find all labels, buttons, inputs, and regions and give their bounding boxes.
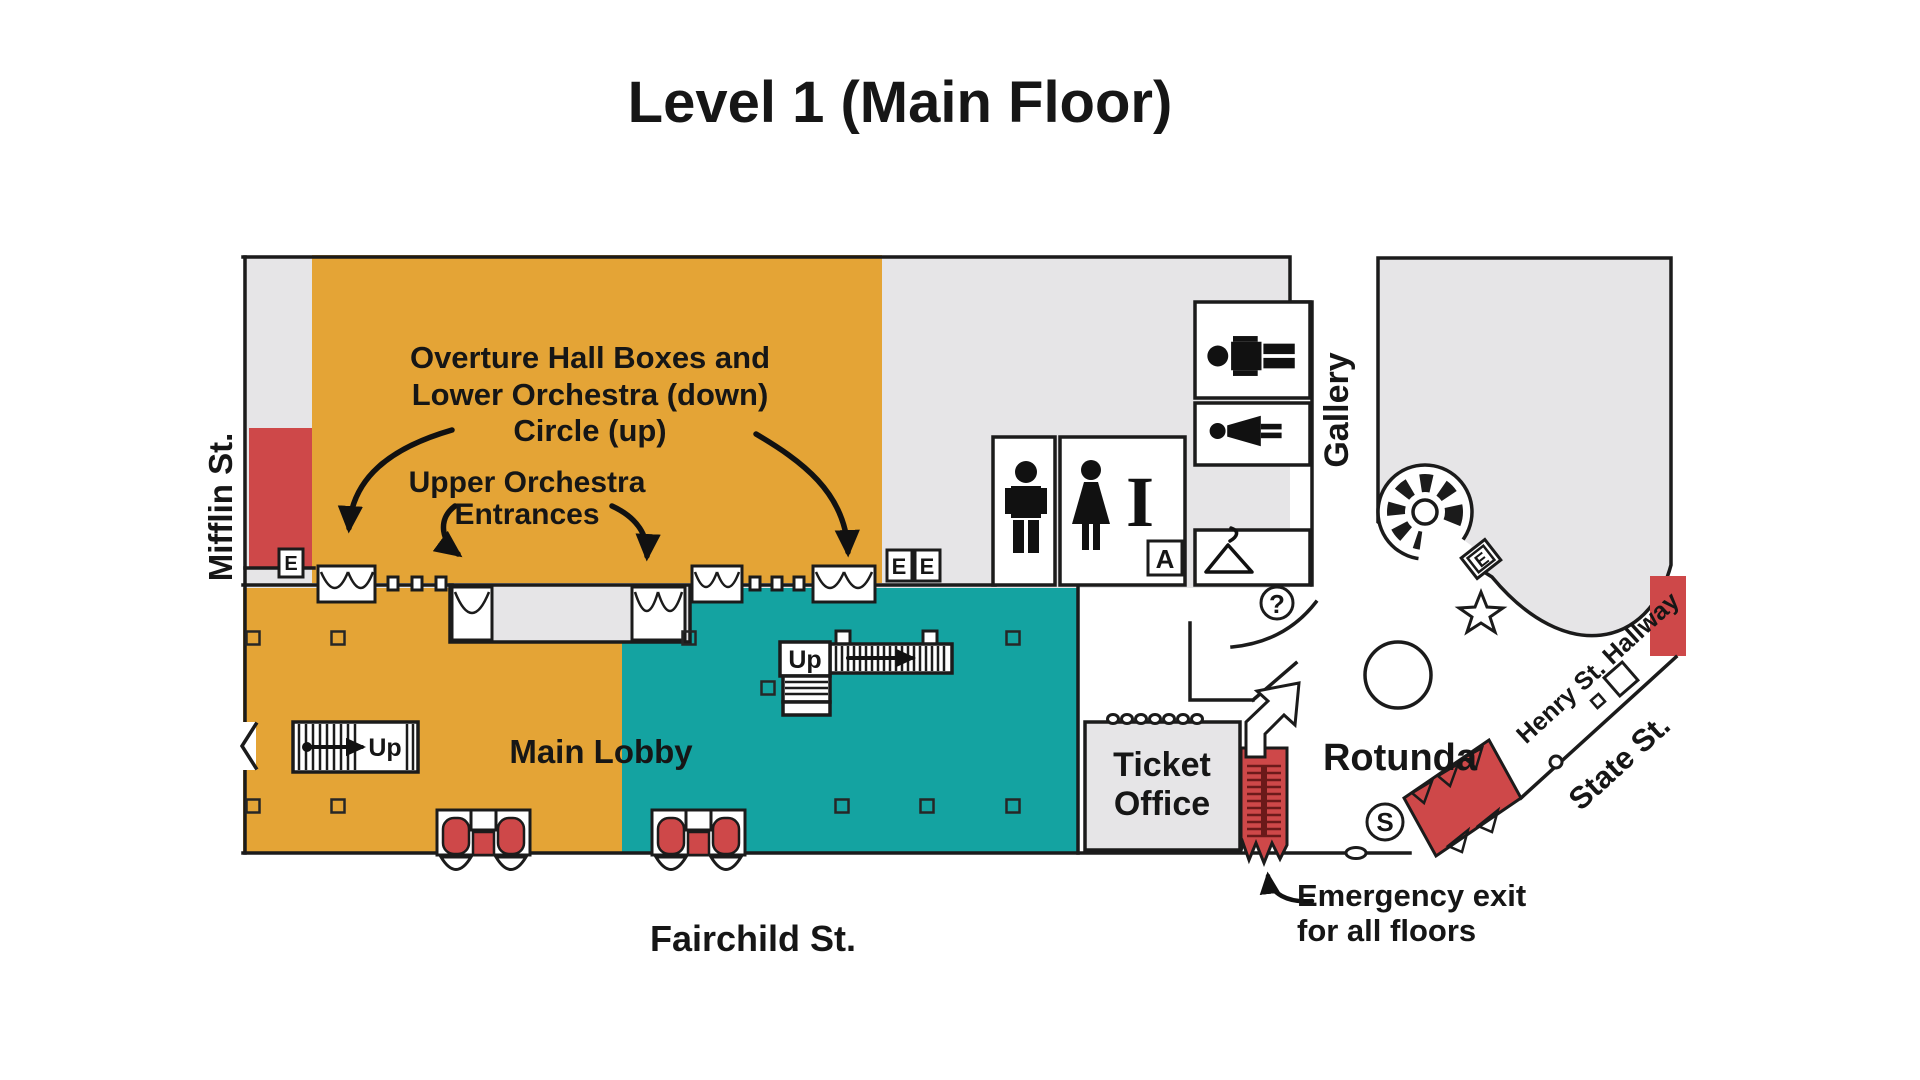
door-oval-marker: [1346, 848, 1366, 859]
star-marker: [1459, 592, 1503, 632]
up-center-label: Up: [788, 646, 821, 674]
coat-check-room: [1195, 530, 1310, 585]
lobby-vestibule-right: [652, 810, 745, 870]
street-label-state: State St.: [1562, 707, 1677, 817]
queue-dots: [1108, 715, 1203, 724]
wall-notch: [388, 577, 398, 590]
ticket-office-label-2: Office: [1114, 785, 1210, 823]
wall-notch: [412, 577, 422, 590]
overture-note-line1: Overture Hall Boxes and: [410, 340, 770, 375]
emergency-stair: [1241, 683, 1299, 863]
street-label-mifflin: Mifflin St.: [202, 433, 239, 581]
emergency-exit-note-line1: Emergency exit: [1297, 878, 1526, 913]
ticket-office: Ticket Office: [1085, 715, 1240, 851]
room-label-main-lobby: Main Lobby: [509, 733, 693, 770]
overture-note-line3: Circle (up): [513, 413, 666, 448]
room-label-gallery: Gallery: [1318, 352, 1356, 467]
stair-s-label: S: [1376, 807, 1393, 837]
lobby-vestibule-left: [437, 810, 530, 870]
elevator-pair-left-label: E: [892, 554, 907, 579]
wall-notch: [794, 577, 804, 590]
mifflin-exit-block: [249, 428, 312, 568]
entrance-door-4: [692, 566, 742, 602]
upper-orchestra-note-line1: Upper Orchestra: [409, 466, 646, 499]
rotunda-circle: [1365, 642, 1431, 708]
wall-notch: [772, 577, 782, 590]
upper-orchestra-note-line2: Entrances: [454, 498, 599, 531]
accessible-room-label: A: [1156, 544, 1175, 574]
state-st-dot-marker: [1550, 756, 1562, 768]
information-i-symbol: I: [1126, 462, 1154, 542]
emergency-stair-arrow: [1246, 683, 1299, 757]
info-question-label: ?: [1269, 589, 1285, 619]
street-label-fairchild: Fairchild St.: [650, 918, 856, 959]
room-label-rotunda: Rotunda: [1323, 737, 1478, 779]
elevator-pair-right-label: E: [920, 554, 935, 579]
ticket-office-label-1: Ticket: [1113, 746, 1211, 784]
floor-plan-page: E S: [0, 0, 1920, 1080]
state-st-door-post: [1591, 694, 1605, 708]
overture-note-line2: Lower Orchestra (down): [412, 377, 769, 412]
up-left-label: Up: [368, 734, 401, 762]
floor-plan-svg: E S: [0, 0, 1920, 1080]
wall-notch: [750, 577, 760, 590]
map-title: Level 1 (Main Floor): [628, 70, 1173, 135]
emergency-exit-note-line2: for all floors: [1297, 913, 1476, 948]
spiral-staircase: [1378, 465, 1472, 580]
wall-notch: [436, 577, 446, 590]
rotunda-hall: [1378, 258, 1671, 636]
elevator-mifflin-label: E: [284, 553, 297, 575]
